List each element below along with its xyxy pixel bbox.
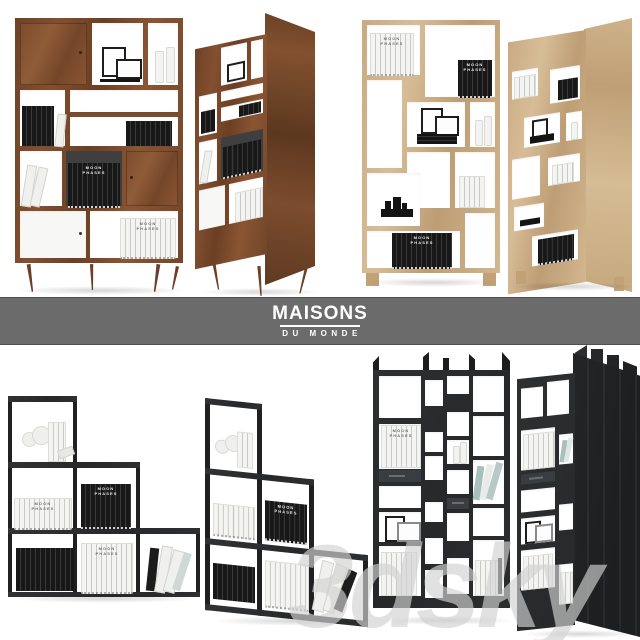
book-set [459, 176, 485, 208]
front-face [195, 34, 267, 269]
door-knob [79, 232, 82, 235]
shelf-cell [521, 386, 543, 418]
shelf-cell [70, 90, 178, 146]
shelf-cell: MOON PHASES [367, 25, 420, 75]
floor-shadow [12, 286, 187, 295]
shelf-cell [199, 93, 217, 137]
shelf-cell [447, 440, 469, 464]
wood-door-panel [126, 151, 178, 206]
shelf-cell [559, 433, 573, 464]
walnut-bookcase-angled-view [195, 12, 315, 298]
drawer-handle [389, 475, 405, 477]
shelf-cell [20, 151, 62, 206]
door-knob [130, 176, 133, 179]
candlestick [475, 120, 483, 146]
shelf-cell [221, 42, 247, 86]
book-set [126, 121, 172, 146]
book-set-label: MOON PHASES [392, 235, 452, 245]
front-face [508, 30, 586, 294]
moon-phases-book-set: MOON PHASES [81, 484, 131, 529]
book-set-label: MOON PHASES [382, 428, 420, 438]
drawer-front [447, 498, 469, 509]
frame-top [8, 396, 77, 402]
book-set [552, 162, 574, 185]
shelf-cell [548, 153, 580, 186]
picture-frame [227, 61, 245, 83]
moon-phases-book-set: MOON PHASES [14, 498, 72, 530]
shelf-cell: MOON PHASES [379, 424, 421, 469]
book [199, 150, 212, 183]
book-set-label: MOON PHASES [265, 502, 307, 516]
candlestick [166, 47, 175, 83]
logo-divider [280, 325, 360, 327]
frame-shelf [8, 462, 140, 468]
shelf-cell [447, 470, 469, 494]
dark-back-cell: MOON PHASES [66, 151, 122, 206]
shelf-cell [473, 460, 504, 504]
shelf-cell [379, 376, 421, 418]
shelf-cell [407, 102, 465, 147]
skyline-model [385, 201, 391, 209]
skyline-base [520, 217, 540, 226]
floor-shadow [364, 278, 500, 287]
book-set [239, 101, 261, 117]
shelf-cell [514, 203, 544, 232]
shelf-cell [512, 155, 540, 199]
book-set-label: MOON PHASES [68, 165, 120, 175]
shelf-cell [512, 68, 538, 100]
shelf-cell [379, 486, 421, 508]
book-set [223, 139, 261, 179]
shelf-cell [473, 416, 504, 456]
metal-stepped-shelf-front-view: MOON PHASES MOON PHASES MOON PHASES [8, 396, 200, 597]
shelf-cell [367, 173, 420, 226]
shelf-cell [425, 456, 443, 480]
book-set [201, 109, 215, 134]
book-set-label: MOON PHASES [121, 221, 175, 231]
frame-base [100, 79, 140, 82]
shelf-cell [425, 380, 443, 406]
shelf-cell [199, 139, 217, 185]
skyline-base [381, 209, 413, 217]
shelf-cell [447, 376, 469, 394]
shelf-cell [251, 39, 263, 80]
door-knob [79, 51, 82, 54]
frame-rod [196, 528, 200, 597]
shelf-cell [148, 23, 178, 85]
shelf-cell [465, 213, 495, 268]
book-set-label: MOON PHASES [82, 546, 132, 556]
shelf-cell [473, 376, 504, 412]
shelf-cell [20, 90, 65, 146]
shelf-cell [229, 177, 263, 224]
book-set [213, 503, 255, 540]
book-set: MOON PHASES [120, 218, 176, 259]
shelf-cell [221, 99, 263, 122]
shelf-board [70, 112, 178, 117]
skyline-model [393, 197, 401, 209]
candlestick [484, 116, 492, 146]
moon-phases-book-set: MOON PHASES [458, 60, 492, 98]
candlestick [155, 51, 164, 83]
drawer-front [521, 471, 555, 485]
book [54, 114, 66, 148]
book-stack [417, 134, 457, 144]
shelf-cell [532, 229, 578, 266]
candlestick [460, 442, 467, 464]
shelf-cell [566, 111, 582, 142]
picture-frame [116, 59, 142, 79]
side-panel [584, 18, 632, 292]
oak-shelf-front-view: MOON PHASES MOON PHASES [362, 20, 500, 287]
drawer-handle [452, 502, 464, 504]
shelf-cell [521, 427, 555, 471]
walnut-bookcase-front-view: MOON PHASES MOON PHASES [15, 18, 183, 292]
side-panel [265, 13, 315, 285]
book-set [514, 74, 536, 99]
book-set-label: MOON PHASES [371, 36, 413, 46]
shelf-cell [447, 412, 469, 436]
book-set-label: MOON PHASES [458, 62, 492, 72]
moon-phases-book-set: MOON PHASES [392, 233, 452, 269]
book-set [213, 563, 255, 603]
brand-name: MAISONS [272, 304, 368, 323]
moon-phases-book-set: MOON PHASES [81, 543, 133, 594]
watermark: 3dsky [288, 528, 598, 640]
book-set-label: MOON PHASES [15, 501, 71, 511]
book-set [558, 77, 578, 100]
shelf-cell [455, 152, 495, 208]
book-set [22, 106, 54, 146]
book-set-label: MOON PHASES [81, 486, 131, 496]
floor-shadow [8, 594, 203, 603]
shelf-cell [92, 23, 143, 85]
white-door-panel [199, 185, 225, 231]
frame-rod [257, 403, 262, 616]
shelf-cell [367, 80, 402, 168]
candlestick [571, 121, 578, 140]
shelf-cell [425, 432, 443, 452]
drawer-front [379, 470, 421, 482]
brand-subname: DU MONDE [278, 330, 362, 338]
product-collage: MOON PHASES MOON PHASES [0, 0, 640, 640]
brand-logo: MAISONS DU MONDE [272, 304, 368, 338]
shelf-cell [470, 102, 495, 147]
moon-phases-book-set: MOON PHASES [68, 163, 120, 208]
floor-shadow [200, 288, 320, 296]
candlestick [453, 446, 460, 464]
wood-door-panel [20, 23, 87, 85]
shelf-cell: MOON PHASES [367, 231, 460, 268]
shelf-cell [521, 487, 555, 513]
drawer-handle [529, 476, 543, 479]
book-set [538, 234, 574, 266]
shelf-cell [547, 380, 569, 416]
picture-frame [435, 116, 459, 136]
walnut-carcass: MOON PHASES MOON PHASES [15, 18, 183, 263]
brand-band: MAISONS DU MONDE [0, 297, 640, 345]
white-door-panel [20, 211, 86, 258]
oak-shelf-angled-view [508, 15, 632, 292]
shelf-cell: MOON PHASES [425, 25, 495, 97]
book-set [16, 548, 74, 591]
fin [502, 352, 510, 372]
shelf-cell [221, 83, 263, 102]
fin [423, 352, 429, 372]
book-set [237, 431, 253, 469]
frame-rod [8, 396, 12, 597]
shelf-cell [550, 65, 580, 104]
book-set [235, 187, 263, 223]
oak-carcass: MOON PHASES MOON PHASES [362, 20, 500, 273]
floor-shadow [510, 282, 635, 291]
frame-top [205, 398, 262, 410]
shelf-cell: MOON PHASES [90, 211, 178, 258]
frame-rod [205, 398, 210, 611]
dark-back-cell [221, 129, 263, 180]
book-set: MOON PHASES [381, 425, 421, 468]
shelf-cell [425, 502, 443, 522]
shelf-cell [524, 112, 560, 148]
book-set [523, 431, 555, 470]
book-set: MOON PHASES [370, 33, 414, 76]
